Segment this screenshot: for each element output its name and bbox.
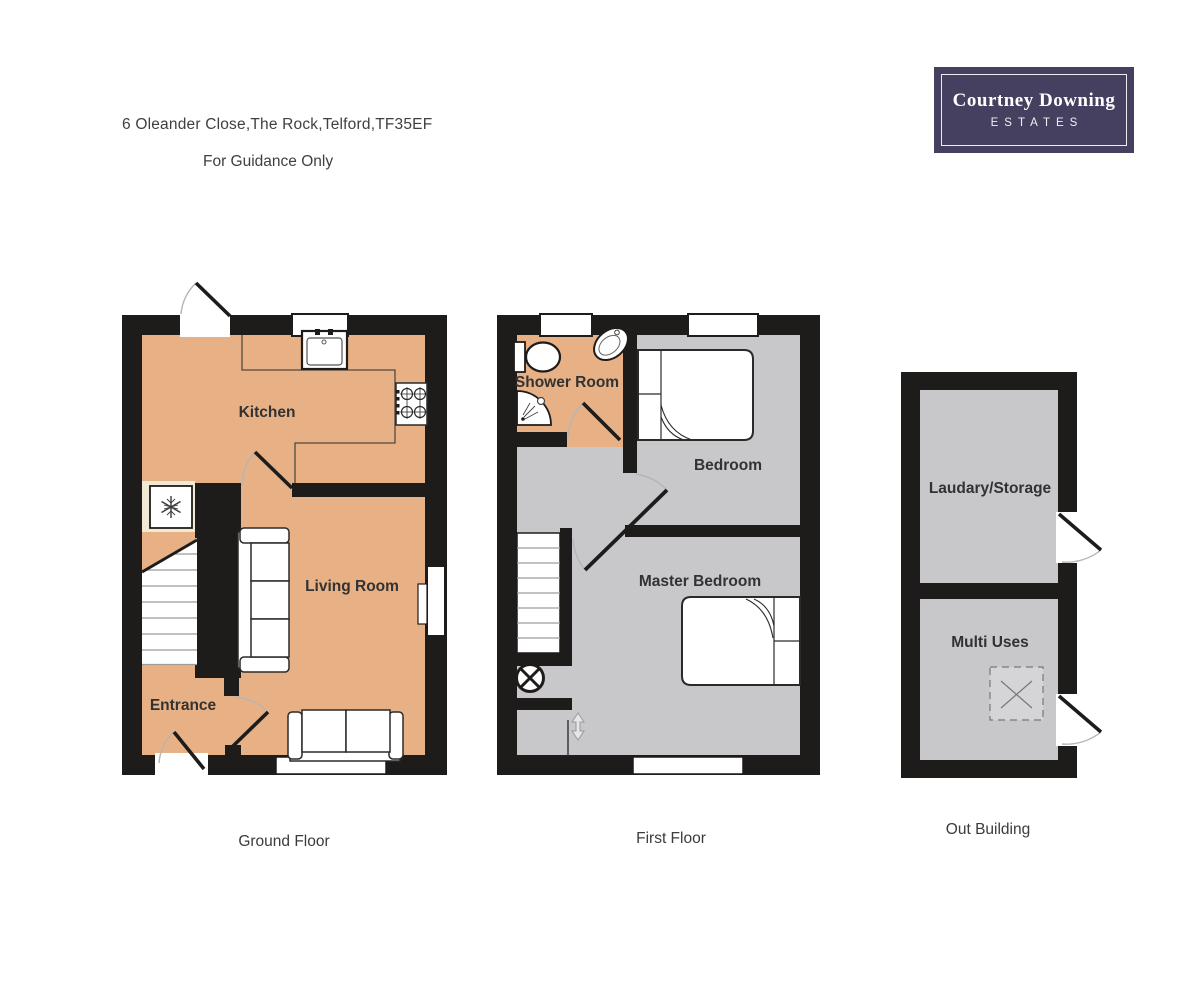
stairs-wall (195, 483, 241, 678)
living-window (427, 566, 445, 636)
kitchen-door-opening (180, 313, 230, 337)
kitchen-living-wall (292, 483, 447, 497)
laundry-storage-label: Laudary/Storage (929, 480, 1052, 497)
shower-bedroom-wall (623, 335, 637, 473)
bed-bedroom (638, 350, 753, 440)
door-swing-arc (181, 283, 230, 316)
bedroom-divider-wall (625, 525, 800, 537)
first-floor-caption: First Floor (636, 830, 706, 848)
first-floor-plan: Shower Room Bedroom Master Bedroom (497, 314, 820, 775)
living-room-label: Living Room (305, 578, 399, 595)
sofa-three-seat (238, 528, 289, 672)
entrance-label: Entrance (150, 697, 217, 714)
shower-window (540, 314, 592, 336)
multi-uses-label: Multi Uses (951, 634, 1029, 651)
toilet-icon (514, 342, 560, 372)
out-building-caption: Out Building (946, 821, 1030, 839)
bedroom-label: Bedroom (694, 457, 762, 474)
ground-floor-caption: Ground Floor (238, 833, 329, 851)
four-burner-hob-icon (396, 383, 427, 425)
bed-master (682, 597, 800, 685)
master-window (633, 757, 743, 774)
floorplan-page: { "header": { "address": "6 Oleander Clo… (0, 0, 1200, 981)
stairs-side-wall (560, 528, 572, 657)
square-cross-icon (990, 667, 1043, 720)
staircase-ground (142, 538, 197, 665)
sofa-two-seat (288, 710, 403, 761)
kitchen-label: Kitchen (239, 404, 296, 421)
circle-cross-light-icon (517, 665, 544, 692)
ground-floor-plan: Kitchen Living Room Entrance (122, 283, 447, 777)
outbuilding-divider-wall (920, 583, 1058, 599)
shower-room-label: Shower Room (515, 374, 619, 391)
kitchen-sink-icon (302, 329, 347, 369)
landing-wall (517, 698, 572, 710)
staircase-first (517, 533, 560, 653)
out-building-plan: Laudary/Storage Multi Uses (901, 372, 1101, 778)
bedroom-window (688, 314, 758, 336)
master-bedroom-label: Master Bedroom (639, 573, 761, 590)
hall-wall-stub (224, 678, 239, 696)
shower-room-wall (517, 432, 567, 447)
living-window-sill (418, 584, 427, 624)
fridge-icon (150, 486, 192, 528)
